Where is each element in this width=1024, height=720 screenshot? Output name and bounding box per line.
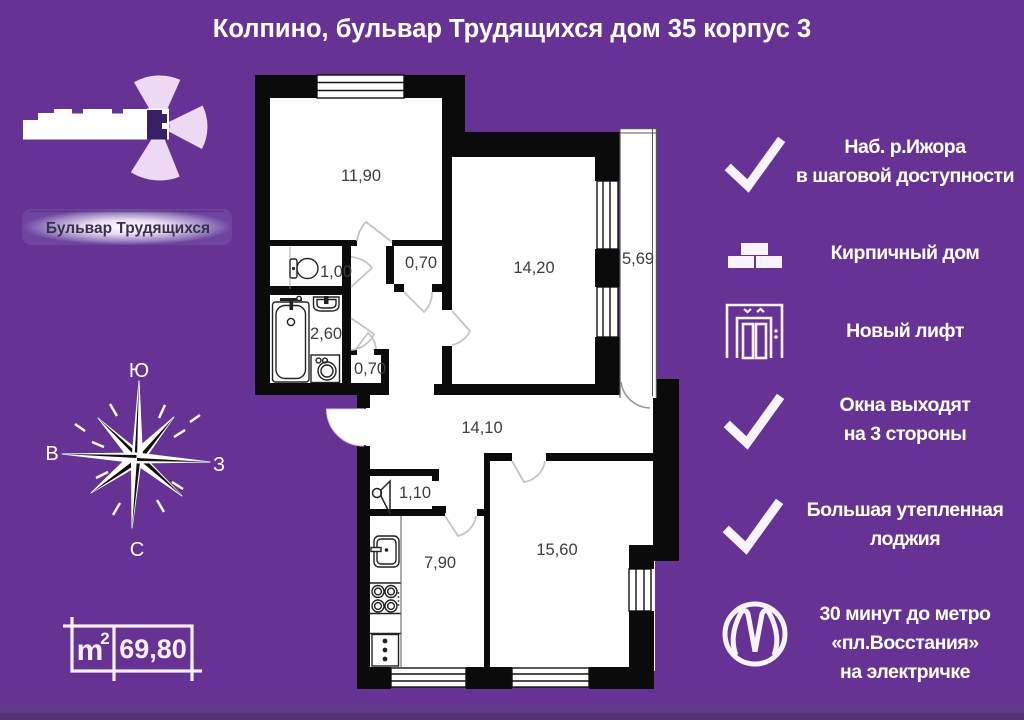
svg-text:З: З bbox=[213, 454, 225, 476]
svg-text:14,20: 14,20 bbox=[513, 259, 554, 277]
svg-text:0,70: 0,70 bbox=[405, 254, 437, 272]
svg-text:69,80: 69,80 bbox=[119, 634, 187, 664]
svg-text:15,60: 15,60 bbox=[536, 541, 577, 559]
svg-text:0,70: 0,70 bbox=[354, 360, 386, 378]
svg-text:5,69: 5,69 bbox=[622, 250, 654, 268]
svg-text:1,10: 1,10 bbox=[399, 484, 431, 502]
svg-text:2,60: 2,60 bbox=[310, 325, 342, 343]
svg-text:В: В bbox=[45, 443, 58, 465]
svg-text:11,90: 11,90 bbox=[341, 167, 381, 185]
svg-text:С: С bbox=[130, 539, 144, 561]
svg-text:Ю: Ю bbox=[129, 360, 149, 382]
svg-text:2: 2 bbox=[100, 629, 109, 648]
svg-text:1,00: 1,00 bbox=[320, 263, 352, 281]
svg-text:7,90: 7,90 bbox=[424, 554, 456, 572]
svg-text:Бульвар Трудящихся: Бульвар Трудящихся bbox=[46, 220, 210, 237]
svg-text:14,10: 14,10 bbox=[461, 419, 502, 437]
